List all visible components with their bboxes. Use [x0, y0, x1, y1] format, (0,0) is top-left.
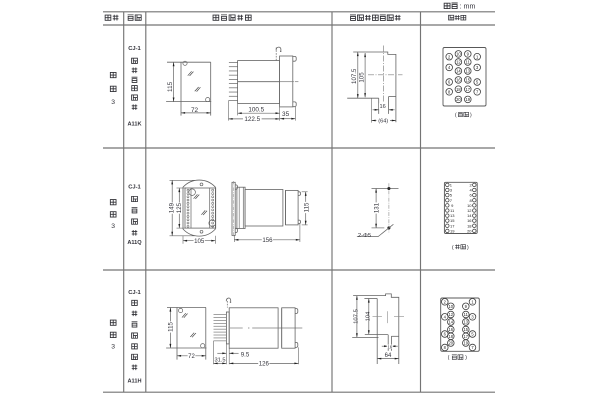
svg-text:20: 20	[456, 97, 461, 102]
svg-text:18: 18	[449, 334, 454, 339]
svg-text:12: 12	[449, 312, 454, 317]
svg-text:CJ-1: CJ-1	[128, 184, 141, 190]
svg-text:19: 19	[464, 341, 469, 346]
svg-text:): )	[467, 245, 469, 251]
svg-text:13: 13	[466, 69, 471, 74]
svg-text:125: 125	[176, 202, 183, 213]
svg-text:72: 72	[191, 107, 199, 114]
svg-text:CJ-1: CJ-1	[128, 46, 141, 52]
svg-text:131: 131	[373, 202, 380, 213]
svg-text:64: 64	[385, 353, 392, 359]
svg-text:31.5: 31.5	[214, 358, 225, 364]
svg-text:3: 3	[111, 223, 115, 230]
svg-text:105: 105	[359, 72, 366, 83]
svg-text:19: 19	[450, 228, 455, 233]
svg-text:16: 16	[379, 104, 385, 110]
svg-text:A11K: A11K	[128, 122, 142, 128]
svg-text:14: 14	[456, 69, 461, 74]
svg-text:3: 3	[111, 344, 115, 351]
svg-text:104: 104	[365, 311, 371, 322]
svg-text:20: 20	[467, 228, 472, 233]
svg-text:): )	[465, 355, 467, 361]
svg-text:72: 72	[188, 354, 195, 360]
svg-text:(: (	[452, 245, 454, 251]
svg-text:35: 35	[282, 111, 290, 118]
svg-text:mm: mm	[464, 4, 476, 11]
svg-text:(: (	[455, 113, 457, 119]
svg-text:15: 15	[464, 327, 469, 332]
svg-text:14: 14	[449, 320, 454, 325]
svg-text:17: 17	[464, 334, 469, 339]
svg-text:): )	[470, 113, 472, 119]
svg-text:2-Φ5: 2-Φ5	[358, 233, 372, 239]
svg-text:13: 13	[464, 320, 469, 325]
svg-text:A11H: A11H	[128, 379, 142, 385]
svg-text:122.5: 122.5	[244, 116, 260, 123]
svg-text:156: 156	[262, 237, 273, 244]
svg-text:A11Q: A11Q	[127, 240, 142, 246]
svg-text:10: 10	[456, 51, 461, 56]
svg-text:12: 12	[456, 60, 461, 65]
svg-text:107.5: 107.5	[353, 308, 359, 323]
svg-text:(: (	[448, 355, 450, 361]
svg-text:CJ-1: CJ-1	[128, 290, 141, 296]
svg-text:20: 20	[449, 341, 454, 346]
svg-text:115: 115	[167, 81, 174, 92]
svg-text:(64): (64)	[378, 119, 388, 125]
svg-text:17: 17	[466, 87, 471, 92]
svg-text:115: 115	[168, 322, 175, 332]
svg-text:107.5: 107.5	[351, 68, 358, 84]
svg-text:16: 16	[456, 77, 461, 82]
svg-text:19: 19	[466, 97, 471, 102]
svg-text:16: 16	[387, 344, 392, 349]
svg-text:18: 18	[456, 87, 461, 92]
svg-text:10: 10	[449, 304, 454, 309]
svg-text::: :	[459, 3, 461, 10]
svg-text:126: 126	[259, 361, 270, 368]
svg-text:11: 11	[464, 312, 469, 317]
svg-text:100.5: 100.5	[248, 107, 264, 114]
svg-text:16: 16	[449, 327, 454, 332]
svg-text:15: 15	[466, 77, 471, 82]
svg-text:9.5: 9.5	[241, 351, 250, 358]
svg-text:105: 105	[194, 238, 205, 245]
svg-text:3: 3	[111, 99, 115, 106]
svg-text:149: 149	[169, 202, 176, 213]
svg-text:115: 115	[303, 202, 310, 212]
svg-text:11: 11	[466, 60, 471, 65]
